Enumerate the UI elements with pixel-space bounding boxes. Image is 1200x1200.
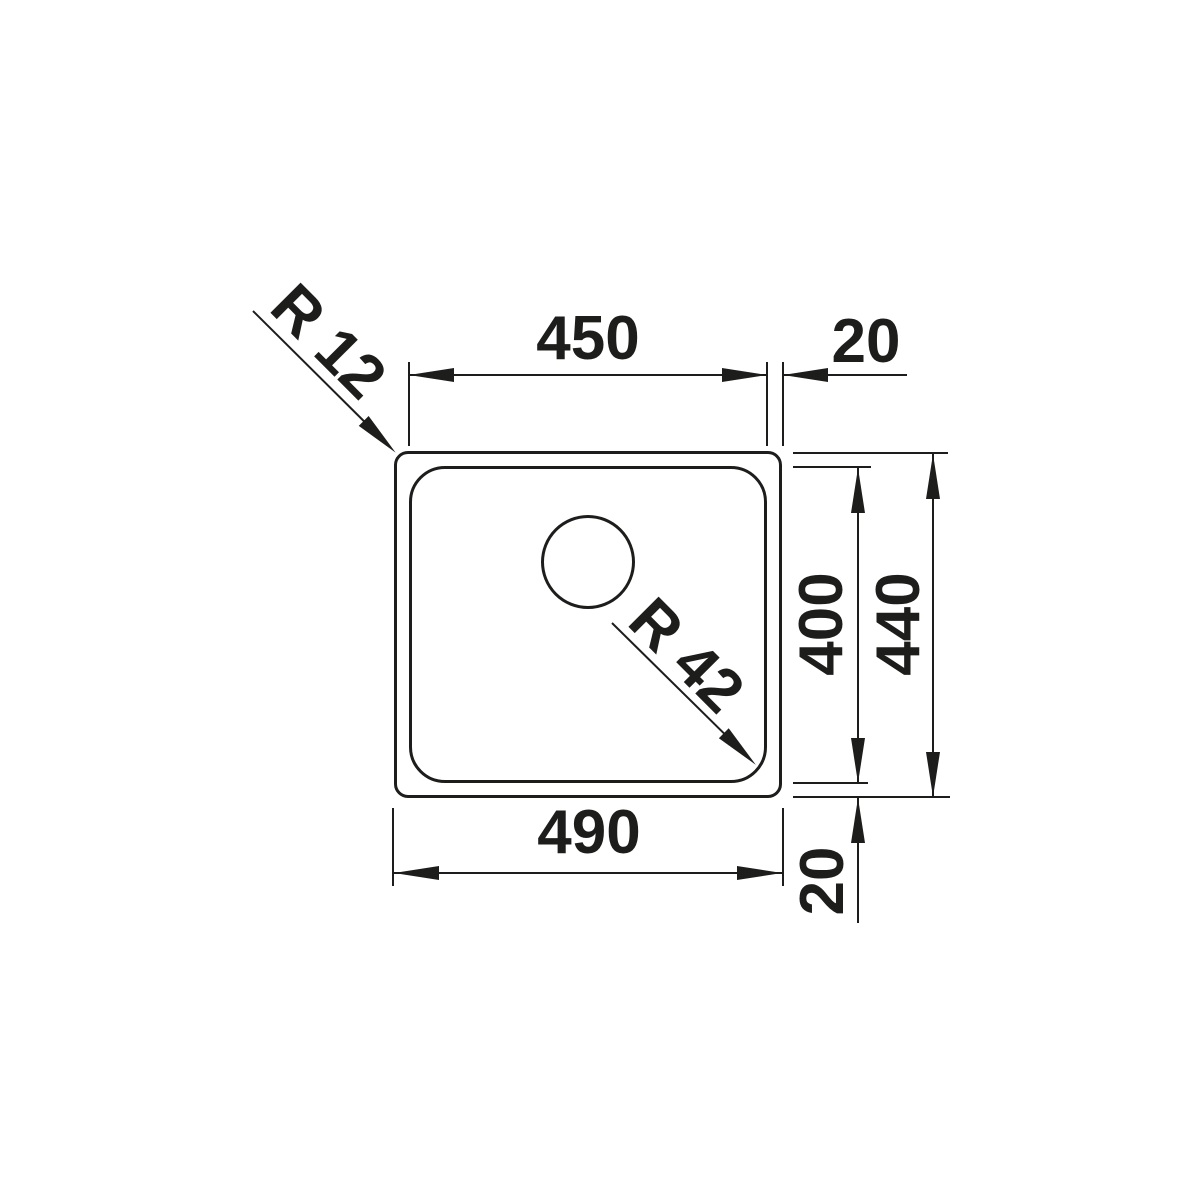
sink-technical-drawing: 450 20 490 400 440 20 R 12 R 42 — [0, 0, 1200, 1200]
dim-line-outer-width — [394, 872, 782, 874]
dim-label-rim-right: 20 — [832, 311, 901, 373]
arrowhead-inner-width-left — [409, 368, 454, 382]
sink-bowl-outline — [409, 466, 767, 783]
arrowhead-inner-width-right — [722, 368, 767, 382]
ext-line-outer-top-right — [793, 452, 948, 454]
dim-line-inner-width — [409, 374, 767, 376]
arrowhead-outer-depth-top — [926, 454, 940, 499]
drain-hole-circle — [541, 515, 635, 609]
dim-label-outer-corner-radius: R 12 — [260, 274, 396, 410]
arrowhead-inner-depth-top — [851, 468, 865, 513]
ext-line-outer-right-bottom — [782, 808, 784, 886]
arrowhead-rim-right — [783, 368, 828, 382]
dim-line-inner-depth — [857, 468, 859, 783]
dim-label-inner-width: 450 — [536, 308, 639, 370]
arrowhead-inner-depth-bottom — [851, 738, 865, 783]
dim-label-outer-width: 490 — [537, 802, 640, 864]
leader-arrowhead — [359, 416, 401, 458]
arrowhead-outer-width-left — [394, 866, 439, 880]
dim-label-rim-bottom: 20 — [792, 847, 854, 916]
dim-label-outer-depth: 440 — [868, 572, 930, 675]
arrowhead-outer-width-right — [737, 866, 782, 880]
arrowhead-outer-depth-bottom — [926, 752, 940, 797]
arrowhead-rim-bottom — [851, 798, 865, 843]
dim-label-inner-depth: 400 — [791, 572, 853, 675]
